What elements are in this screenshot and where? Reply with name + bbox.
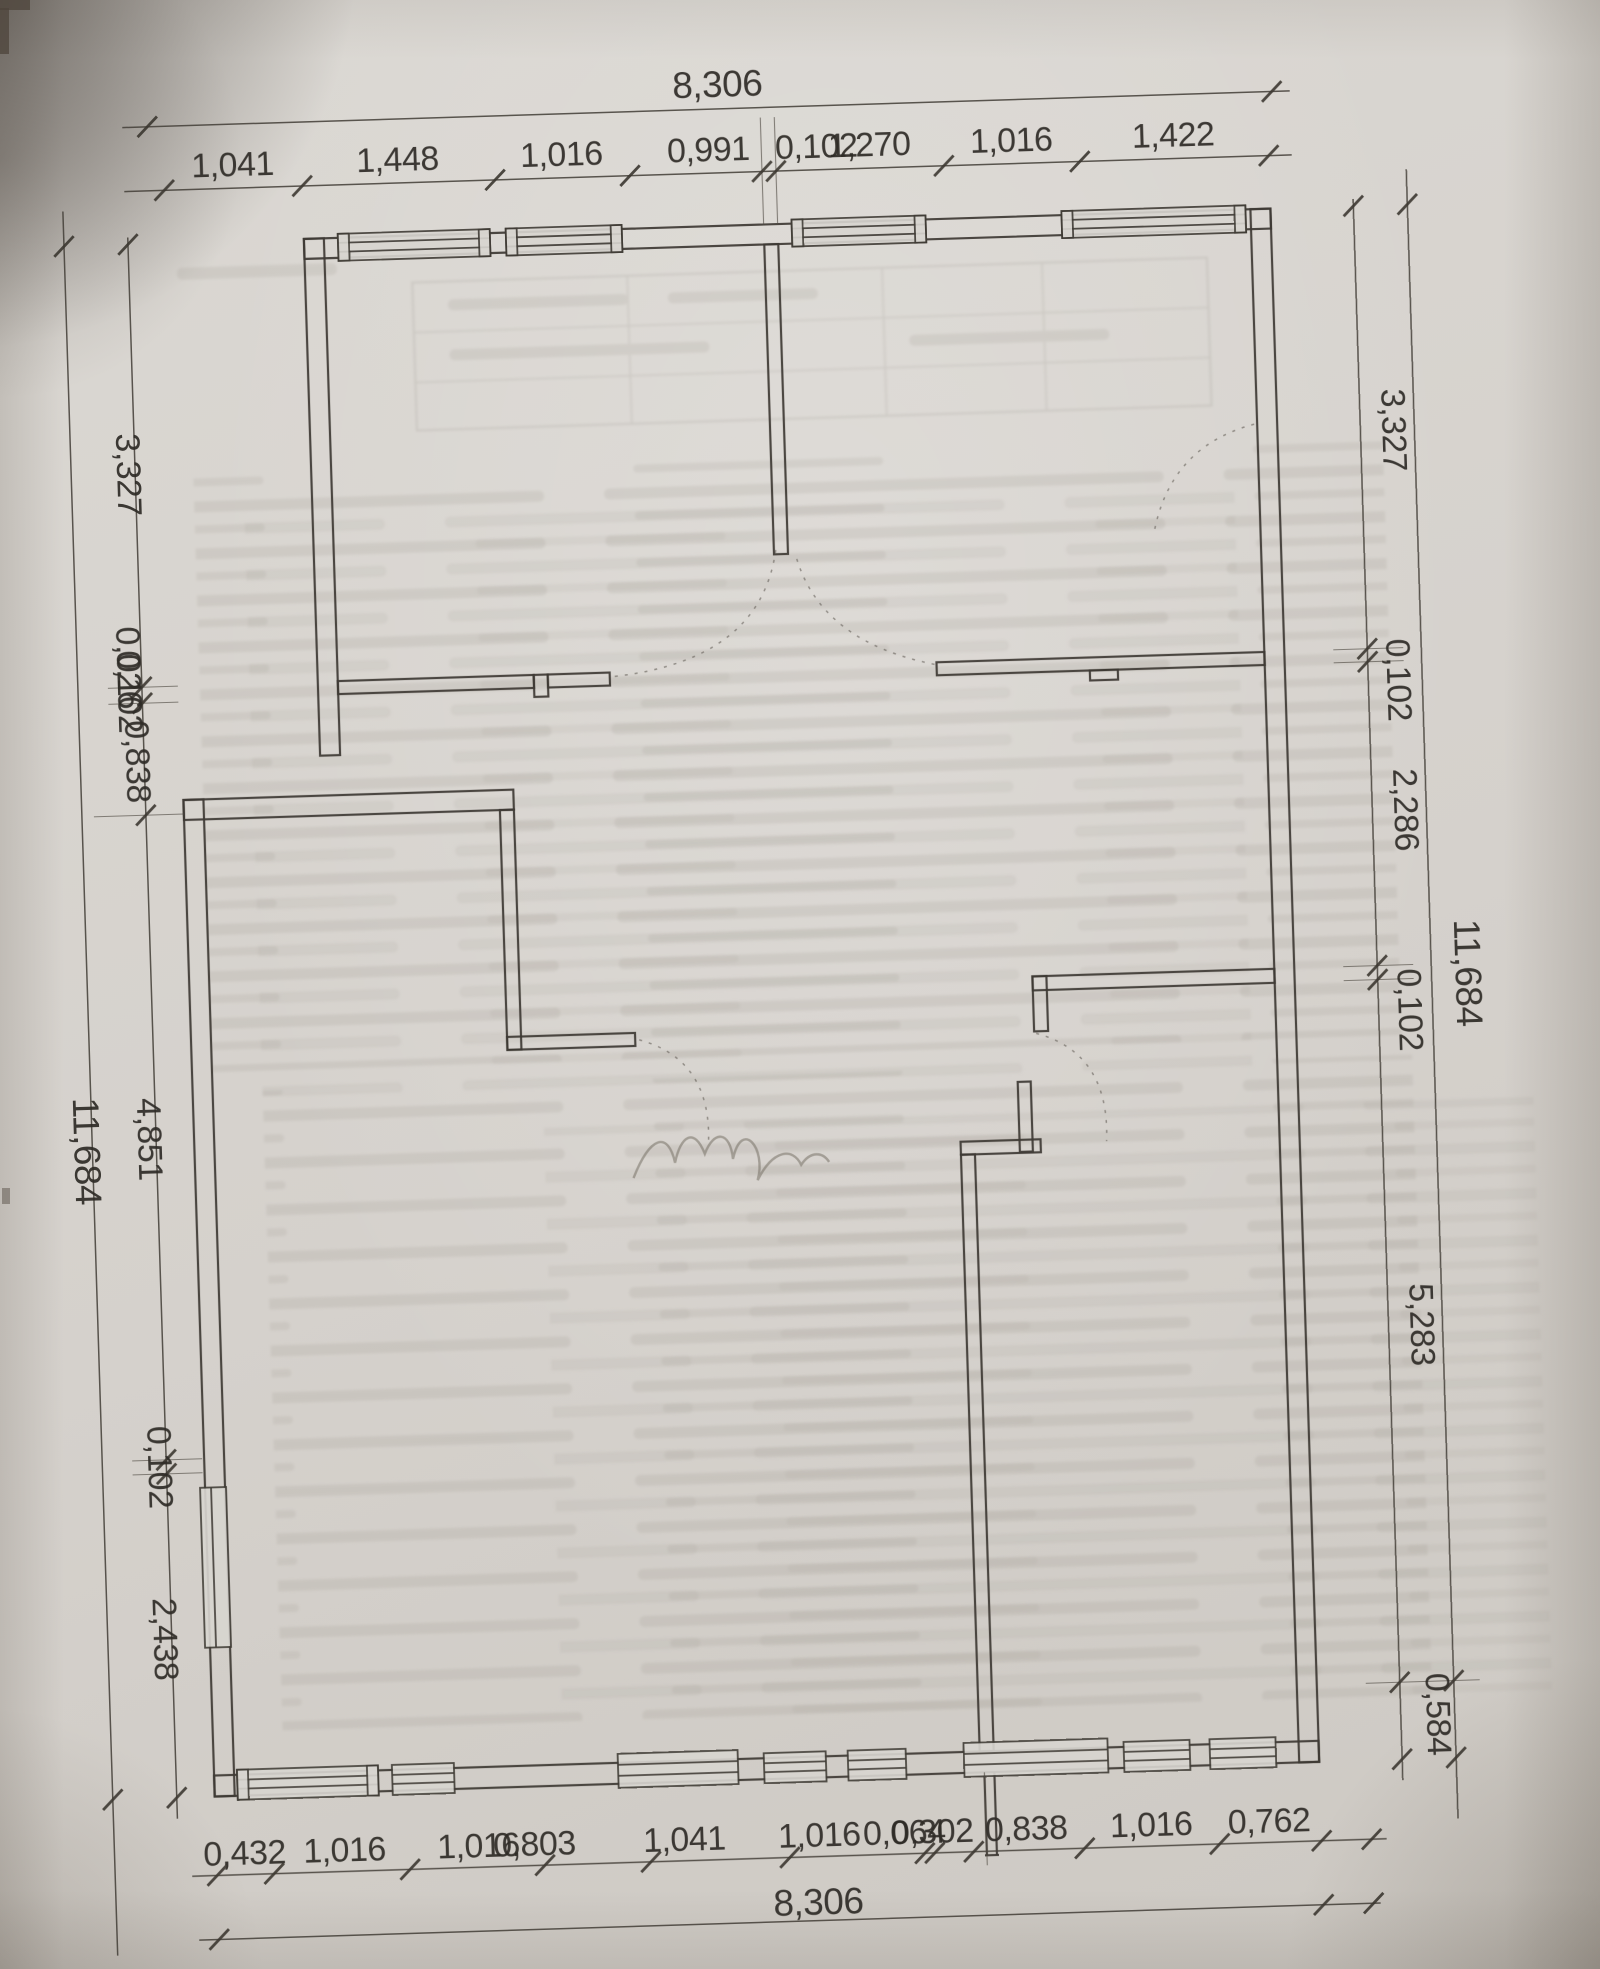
scanned-floor-plan-page: 8,306 1,041 1,448 1,016 0,991 0,102 1,27… [0,0,1600,1969]
dim-top-seg-3: 0,991 [666,130,750,171]
dim-right-seg-3: 0,102 [1389,968,1430,1052]
window [338,229,491,261]
window [618,1750,739,1788]
dim-right-seg-5: 0,584 [1417,1672,1458,1756]
dim-bottom-seg-3: 0,803 [493,1824,577,1865]
dim-left-seg-4: 4,851 [129,1097,170,1181]
window [506,225,623,256]
scan-rotation-group: 8,306 1,041 1,448 1,016 0,991 0,102 1,27… [33,39,1559,1956]
dim-right-seg-2: 2,286 [1385,768,1426,852]
dim-top-seg-7: 1,422 [1131,115,1215,156]
window [963,1738,1108,1777]
dim-bottom-seg-9: 1,016 [1109,1805,1193,1846]
window [1061,205,1246,238]
dim-top-seg-2: 1,016 [519,135,603,176]
dim-bottom-seg-4: 1,041 [642,1820,726,1861]
window [392,1763,455,1795]
dim-bottom-seg-1: 1,016 [303,1830,387,1871]
dim-top-total: 8,306 [672,62,763,106]
window [1209,1737,1276,1769]
dim-right-seg-4: 5,283 [1401,1283,1442,1367]
dim-top-seg-0: 1,041 [191,145,275,186]
dim-bottom-seg-10: 0,762 [1227,1801,1311,1842]
dim-top-seg-1: 1,448 [356,140,440,181]
dim-bottom-seg-5: 1,016 [777,1815,861,1856]
dim-left-total: 11,684 [65,1097,109,1206]
dim-bottom-seg-0: 0,432 [203,1833,287,1874]
dim-bottom-total: 8,306 [773,1880,864,1924]
window [764,1751,827,1783]
window [200,1487,231,1648]
dim-top-seg-6: 1,016 [969,120,1053,161]
dim-right-seg-0: 3,327 [1373,388,1414,472]
floor-plan-drawing: 8,306 1,041 1,448 1,016 0,991 0,102 1,27… [0,0,1600,1969]
dim-left-seg-0: 3,327 [108,433,149,517]
dim-top-seg-5: 1,270 [827,125,911,166]
dim-left-seg-6: 2,438 [144,1597,185,1681]
dim-bottom-seg-8: 0,838 [984,1809,1068,1850]
window [792,215,927,246]
window [237,1765,379,1799]
dim-right-total: 11,684 [1446,918,1490,1027]
window [848,1749,907,1781]
dim-left-seg-5: 0,102 [139,1425,180,1509]
window [1123,1740,1190,1772]
dim-left-seg-3: 0,838 [117,720,158,804]
dim-bottom-seg-7: 0,302 [890,1812,974,1853]
dim-right-seg-1: 0,102 [1378,638,1419,722]
